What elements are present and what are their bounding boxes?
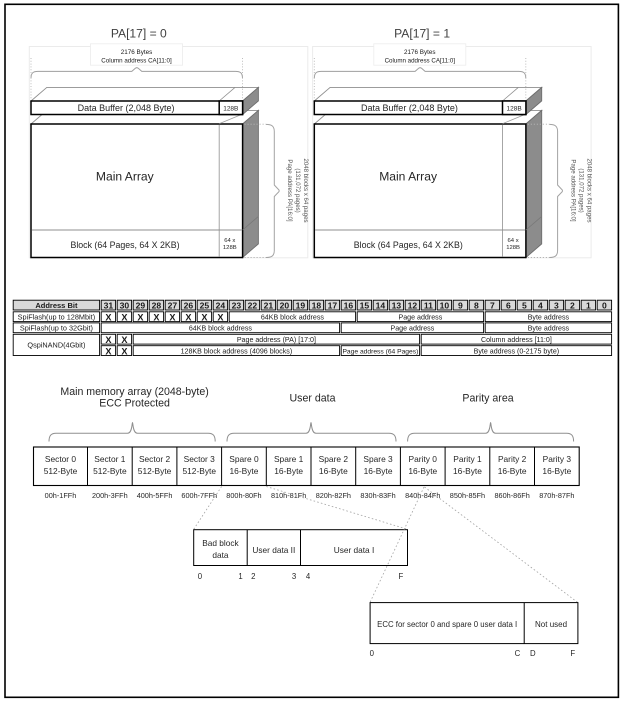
svg-text:Parity 1: Parity 1 bbox=[453, 454, 482, 464]
svg-text:Block (64 Pages, 64 X 2KB): Block (64 Pages, 64 X 2KB) bbox=[70, 240, 179, 250]
svg-text:Byte address: Byte address bbox=[528, 313, 570, 321]
svg-text:Page address (64 Pages): Page address (64 Pages) bbox=[342, 348, 418, 355]
svg-text:4: 4 bbox=[306, 572, 311, 581]
svg-text:16-Byte: 16-Byte bbox=[498, 466, 527, 476]
svg-text:00h-1FFh: 00h-1FFh bbox=[45, 491, 77, 500]
svg-text:860h-86Fh: 860h-86Fh bbox=[495, 491, 530, 500]
svg-text:Spare 3: Spare 3 bbox=[363, 454, 393, 464]
svg-text:2176 Bytes: 2176 Bytes bbox=[404, 49, 436, 56]
svg-text:X: X bbox=[121, 346, 128, 356]
svg-text:16-Byte: 16-Byte bbox=[364, 466, 393, 476]
svg-text:Sector 3: Sector 3 bbox=[184, 454, 216, 464]
svg-text:512-Byte: 512-Byte bbox=[93, 466, 127, 476]
svg-text:0: 0 bbox=[370, 649, 375, 658]
svg-text:X: X bbox=[121, 312, 128, 322]
svg-text:0: 0 bbox=[602, 300, 607, 310]
svg-text:64KB block address: 64KB block address bbox=[261, 313, 325, 321]
svg-text:15: 15 bbox=[360, 300, 370, 310]
svg-text:data: data bbox=[212, 550, 229, 560]
svg-text:10: 10 bbox=[440, 300, 450, 310]
svg-text:820h-82Fh: 820h-82Fh bbox=[316, 491, 351, 500]
svg-text:X: X bbox=[105, 335, 112, 345]
svg-text:Page address (PA) [17:0]: Page address (PA) [17:0] bbox=[237, 336, 316, 344]
svg-text:16: 16 bbox=[344, 300, 354, 310]
svg-text:810h-81Fh: 810h-81Fh bbox=[271, 491, 306, 500]
svg-text:SpiFlash(up to 32Gbit): SpiFlash(up to 32Gbit) bbox=[20, 323, 93, 332]
svg-text:2048 blocks x 64 pages: 2048 blocks x 64 pages bbox=[302, 158, 309, 222]
svg-text:128B: 128B bbox=[506, 245, 520, 251]
svg-text:512-Byte: 512-Byte bbox=[138, 466, 172, 476]
svg-text:Page address PA[16:0]: Page address PA[16:0] bbox=[569, 159, 576, 222]
svg-text:Sector 1: Sector 1 bbox=[94, 454, 126, 464]
svg-text:11: 11 bbox=[424, 300, 433, 310]
svg-text:400h-5FFh: 400h-5FFh bbox=[137, 491, 173, 500]
svg-text:Sector 0: Sector 0 bbox=[45, 454, 77, 464]
svg-text:28: 28 bbox=[152, 300, 162, 310]
svg-text:6: 6 bbox=[506, 300, 511, 310]
svg-text:C: C bbox=[515, 649, 521, 658]
svg-text:3: 3 bbox=[292, 572, 296, 581]
svg-text:Data Buffer (2,048 Byte): Data Buffer (2,048 Byte) bbox=[78, 103, 175, 113]
svg-text:9: 9 bbox=[458, 300, 463, 310]
svg-text:Column address CA[11:0]: Column address CA[11:0] bbox=[385, 58, 456, 65]
svg-text:20: 20 bbox=[280, 300, 290, 310]
svg-text:0: 0 bbox=[198, 572, 203, 581]
svg-text:16-Byte: 16-Byte bbox=[230, 466, 259, 476]
svg-text:ECC for sector 0 and spare 0 u: ECC for sector 0 and spare 0 user data I bbox=[377, 620, 517, 629]
svg-text:Column address CA[11:0]: Column address CA[11:0] bbox=[101, 58, 172, 65]
svg-text:Page address: Page address bbox=[399, 313, 443, 321]
svg-text:14: 14 bbox=[376, 300, 386, 310]
svg-text:Main Array: Main Array bbox=[96, 169, 155, 183]
svg-text:D: D bbox=[530, 649, 536, 658]
svg-text:Sector 2: Sector 2 bbox=[139, 454, 171, 464]
svg-text:64 x: 64 x bbox=[508, 238, 519, 244]
svg-text:1: 1 bbox=[238, 572, 242, 581]
svg-text:Not used: Not used bbox=[535, 620, 567, 629]
svg-text:Main Array: Main Array bbox=[379, 169, 438, 183]
svg-text:16-Byte: 16-Byte bbox=[319, 466, 348, 476]
svg-text:F: F bbox=[570, 649, 575, 658]
svg-text:User data: User data bbox=[290, 392, 336, 404]
svg-text:512-Byte: 512-Byte bbox=[182, 466, 216, 476]
svg-text:2048 blocks x 64 pages: 2048 blocks x 64 pages bbox=[585, 158, 592, 222]
svg-text:Spare 2: Spare 2 bbox=[319, 454, 349, 464]
svg-text:Column address [11:0]: Column address [11:0] bbox=[481, 336, 552, 344]
svg-text:PA[17] = 0: PA[17] = 0 bbox=[111, 27, 167, 41]
svg-text:Byte address: Byte address bbox=[528, 325, 570, 333]
svg-text:X: X bbox=[185, 312, 192, 322]
svg-text:SpiFlash(up to 128Mbit): SpiFlash(up to 128Mbit) bbox=[18, 312, 95, 321]
svg-text:Spare 0: Spare 0 bbox=[229, 454, 259, 464]
svg-text:64KB block address: 64KB block address bbox=[189, 325, 253, 333]
svg-text:X: X bbox=[105, 312, 112, 322]
svg-text:X: X bbox=[169, 312, 176, 322]
svg-text:23: 23 bbox=[232, 300, 242, 310]
svg-text:16-Byte: 16-Byte bbox=[408, 466, 437, 476]
svg-text:Byte address (0-2175 byte): Byte address (0-2175 byte) bbox=[474, 347, 560, 355]
svg-text:64 x: 64 x bbox=[224, 238, 235, 244]
svg-text:12: 12 bbox=[408, 300, 418, 310]
svg-text:830h-83Fh: 830h-83Fh bbox=[360, 491, 395, 500]
svg-text:29: 29 bbox=[136, 300, 146, 310]
svg-text:16-Byte: 16-Byte bbox=[274, 466, 303, 476]
svg-text:870h-87Fh: 870h-87Fh bbox=[539, 491, 574, 500]
svg-text:200h-3FFh: 200h-3FFh bbox=[92, 491, 128, 500]
svg-text:X: X bbox=[153, 312, 160, 322]
svg-text:8: 8 bbox=[474, 300, 479, 310]
svg-text:128B: 128B bbox=[507, 105, 522, 112]
svg-text:X: X bbox=[201, 312, 208, 322]
svg-text:840h-84Fh: 840h-84Fh bbox=[405, 491, 440, 500]
svg-text:30: 30 bbox=[120, 300, 130, 310]
svg-text:Parity area: Parity area bbox=[462, 392, 513, 404]
svg-text:26: 26 bbox=[184, 300, 194, 310]
svg-text:31: 31 bbox=[104, 300, 114, 310]
svg-text:X: X bbox=[137, 312, 144, 322]
svg-text:512-Byte: 512-Byte bbox=[44, 466, 78, 476]
svg-text:F: F bbox=[399, 572, 404, 581]
svg-text:QspiNAND(4Gbit): QspiNAND(4Gbit) bbox=[27, 341, 85, 350]
svg-text:2176 Bytes: 2176 Bytes bbox=[121, 49, 153, 56]
svg-text:X: X bbox=[105, 346, 112, 356]
svg-text:Address Bit: Address Bit bbox=[35, 301, 78, 310]
svg-text:850h-85Fh: 850h-85Fh bbox=[450, 491, 485, 500]
svg-text:3: 3 bbox=[554, 300, 559, 310]
svg-text:27: 27 bbox=[168, 300, 178, 310]
svg-text:7: 7 bbox=[490, 300, 495, 310]
svg-text:ECC Protected: ECC Protected bbox=[99, 397, 170, 409]
svg-text:16-Byte: 16-Byte bbox=[453, 466, 482, 476]
svg-text:2: 2 bbox=[251, 572, 255, 581]
svg-text:Block (64 Pages, 64 X 2KB): Block (64 Pages, 64 X 2KB) bbox=[354, 240, 463, 250]
svg-text:21: 21 bbox=[264, 300, 274, 310]
svg-text:Page address: Page address bbox=[391, 325, 435, 333]
svg-text:128B: 128B bbox=[223, 245, 237, 251]
svg-text:Parity 0: Parity 0 bbox=[409, 454, 438, 464]
svg-text:1: 1 bbox=[586, 300, 591, 310]
svg-text:25: 25 bbox=[200, 300, 210, 310]
svg-text:19: 19 bbox=[296, 300, 306, 310]
svg-text:5: 5 bbox=[522, 300, 527, 310]
svg-text:128KB block address (4096 bloc: 128KB block address (4096 blocks) bbox=[181, 347, 293, 355]
svg-text:16-Byte: 16-Byte bbox=[542, 466, 571, 476]
svg-text:24: 24 bbox=[216, 300, 226, 310]
svg-text:800h-80Fh: 800h-80Fh bbox=[226, 491, 261, 500]
svg-text:X: X bbox=[121, 335, 128, 345]
svg-text:2: 2 bbox=[570, 300, 575, 310]
svg-text:Parity 3: Parity 3 bbox=[543, 454, 572, 464]
svg-text:Main memory array (2048-byte): Main memory array (2048-byte) bbox=[60, 386, 208, 398]
svg-text:Bad block: Bad block bbox=[202, 538, 239, 548]
svg-text:13: 13 bbox=[392, 300, 402, 310]
svg-text:(131,072 pages): (131,072 pages) bbox=[294, 168, 301, 212]
svg-text:128B: 128B bbox=[223, 105, 238, 112]
svg-text:Page address PA[16:0]: Page address PA[16:0] bbox=[286, 159, 293, 222]
svg-text:4: 4 bbox=[538, 300, 543, 310]
svg-text:Data Buffer (2,048 Byte): Data Buffer (2,048 Byte) bbox=[361, 103, 458, 113]
svg-text:Parity 2: Parity 2 bbox=[498, 454, 527, 464]
svg-text:User data II: User data II bbox=[252, 545, 295, 555]
svg-text:X: X bbox=[217, 312, 224, 322]
svg-text:17: 17 bbox=[328, 300, 338, 310]
svg-text:600h-7FFh: 600h-7FFh bbox=[181, 491, 217, 500]
svg-text:18: 18 bbox=[312, 300, 322, 310]
svg-text:22: 22 bbox=[248, 300, 258, 310]
svg-text:User data I: User data I bbox=[334, 545, 375, 555]
svg-text:(131,072 pages): (131,072 pages) bbox=[577, 168, 584, 212]
svg-text:Spare 1: Spare 1 bbox=[274, 454, 304, 464]
svg-text:PA[17] = 1: PA[17] = 1 bbox=[394, 27, 450, 41]
